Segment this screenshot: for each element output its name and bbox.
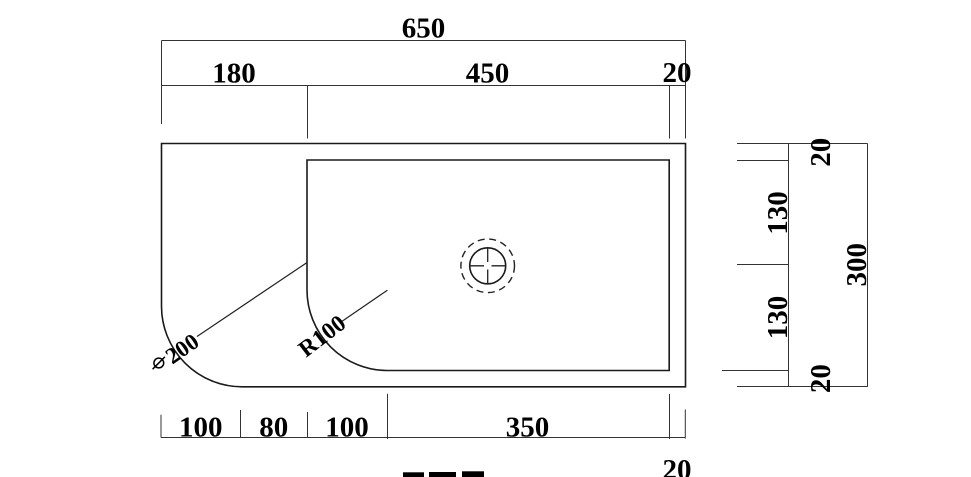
svg-text:20: 20 — [805, 138, 837, 167]
svg-text:300: 300 — [841, 243, 873, 287]
svg-text:130: 130 — [762, 191, 794, 235]
svg-text:100: 100 — [325, 411, 369, 443]
svg-text:180: 180 — [212, 58, 256, 90]
svg-text:650: 650 — [402, 12, 446, 44]
svg-text:80: 80 — [259, 411, 288, 443]
svg-text:130: 130 — [762, 296, 794, 340]
svg-text:20: 20 — [805, 364, 837, 393]
svg-text:20: 20 — [663, 454, 692, 477]
svg-text:350: 350 — [506, 411, 550, 443]
svg-text:20: 20 — [663, 57, 692, 89]
svg-text:R100: R100 — [294, 310, 351, 362]
svg-text:450: 450 — [466, 58, 510, 90]
svg-text:100: 100 — [179, 411, 223, 443]
